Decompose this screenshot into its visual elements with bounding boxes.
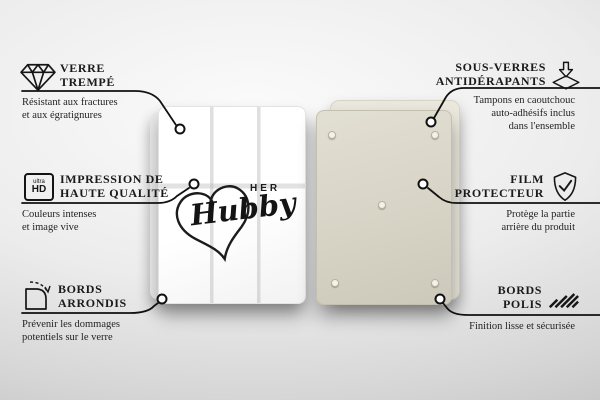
product-infographic: HER Hubby VERRE TREMPÉ Résist: [0, 0, 600, 400]
feature-desc-bords-arrondis: Prévenir les dommages potentiels sur le …: [22, 318, 120, 344]
rounded-corner-icon: [20, 279, 54, 311]
diamond-icon: [19, 61, 57, 93]
feature-title-bords-arrondis: BORDS ARRONDIS: [58, 282, 127, 310]
rubber-pad: [431, 279, 439, 287]
feature-title-sous-verres: SOUS-VERRES ANTIDÉRAPANTS: [436, 60, 546, 88]
polished-edges-icon: [546, 280, 580, 310]
rubber-pad: [328, 131, 336, 139]
shield-check-icon: [550, 170, 580, 204]
feature-title-bords-polis: BORDS POLIS: [498, 283, 542, 311]
anti-slip-pads-icon: [550, 59, 582, 93]
glass-back-panel: [316, 110, 452, 305]
feature-title-film-protecteur: FILM PROTECTEUR: [455, 172, 544, 200]
feature-desc-bords-polis: Finition lisse et sécurisée: [469, 320, 575, 333]
feature-desc-impression: Couleurs intenses et image vive: [22, 208, 96, 234]
feature-desc-film-protecteur: Protège la partie arrière du produit: [502, 208, 575, 234]
feature-title-impression: IMPRESSION DE HAUTE QUALITÉ: [60, 172, 169, 200]
feature-desc-sous-verres: Tampons en caoutchouc auto-adhésifs incl…: [474, 94, 575, 133]
rubber-pad: [431, 131, 439, 139]
ultra-hd-icon: ultra HD: [24, 173, 54, 201]
rubber-pad: [331, 279, 339, 287]
feature-desc-verre-trempe: Résistant aux fractures et aux égratignu…: [22, 96, 118, 122]
feature-title-verre-trempe: VERRE TREMPÉ: [60, 61, 115, 89]
rubber-pad: [378, 201, 386, 209]
